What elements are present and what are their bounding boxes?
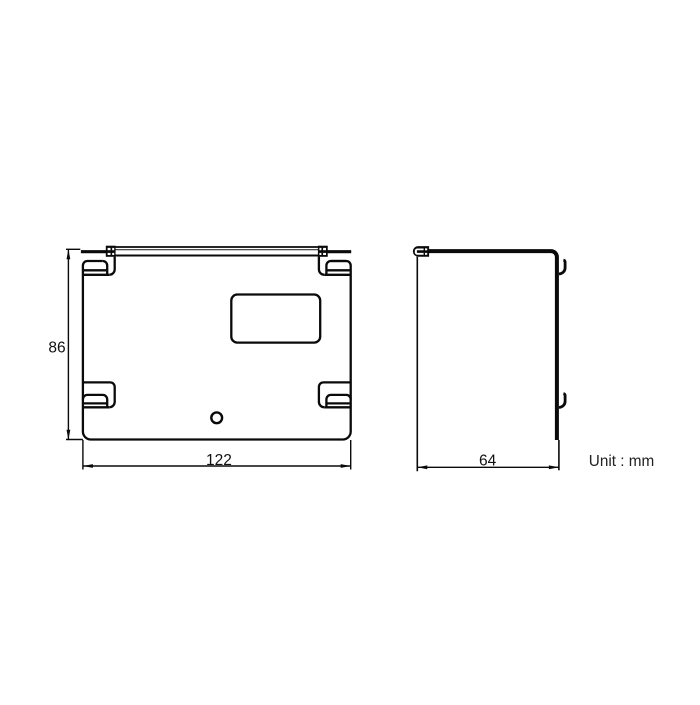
svg-text:Unit : mm: Unit : mm	[589, 453, 654, 470]
svg-text:64: 64	[479, 453, 497, 470]
svg-text:86: 86	[48, 340, 65, 357]
svg-text:122: 122	[206, 452, 232, 469]
